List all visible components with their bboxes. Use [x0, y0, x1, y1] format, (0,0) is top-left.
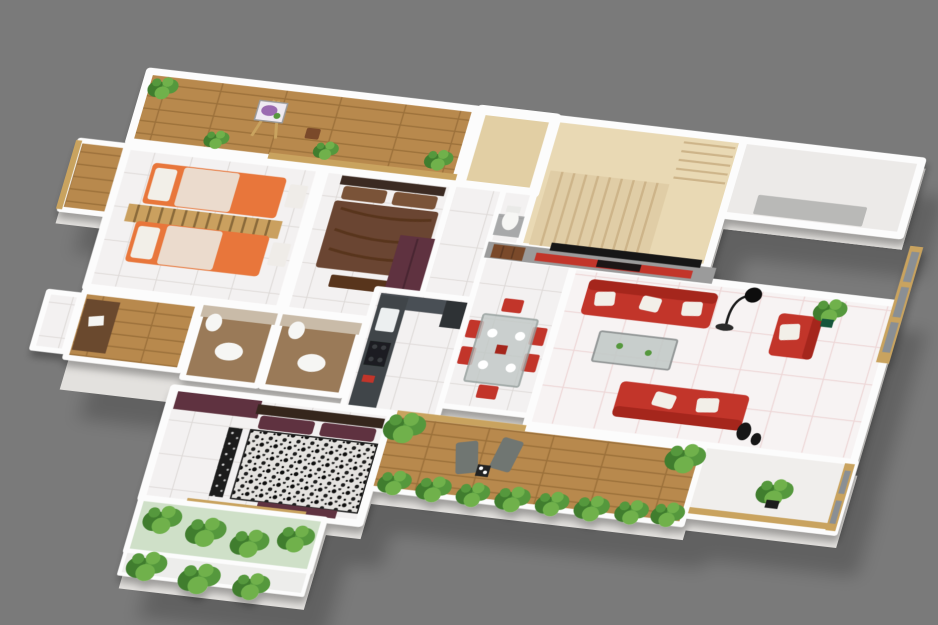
study-nook: [65, 291, 198, 370]
plant-pot: [820, 319, 834, 328]
plant-pot: [764, 500, 779, 509]
floor-plan-render: [0, 0, 938, 625]
se-balcony: [684, 445, 855, 533]
scene-svg: [0, 0, 938, 625]
kids-bedroom: [86, 146, 321, 309]
ne-roof-slab: [722, 140, 922, 236]
paper: [88, 316, 104, 327]
